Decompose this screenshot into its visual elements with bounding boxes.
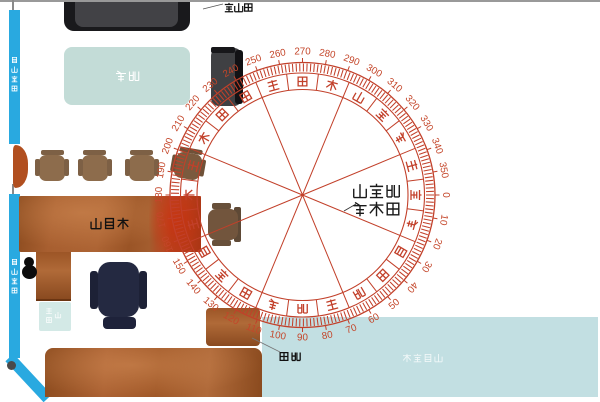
svg-text:30: 30 [419, 259, 434, 274]
svg-text:10: 10 [437, 213, 450, 226]
svg-text:320: 320 [403, 93, 422, 113]
svg-text:60: 60 [367, 311, 382, 326]
svg-text:130: 130 [201, 295, 221, 314]
svg-text:140: 140 [184, 277, 203, 297]
svg-text:180: 180 [154, 186, 165, 203]
svg-text:100: 100 [269, 329, 288, 343]
svg-text:90: 90 [297, 333, 308, 344]
svg-text:70: 70 [344, 322, 359, 336]
svg-text:220: 220 [184, 93, 203, 113]
svg-text:20: 20 [430, 237, 444, 252]
svg-text:200: 200 [160, 136, 176, 156]
svg-text:170: 170 [155, 210, 169, 229]
svg-text:350: 350 [436, 161, 450, 180]
svg-text:330: 330 [417, 114, 435, 134]
svg-text:0: 0 [440, 192, 451, 198]
svg-text:230: 230 [201, 76, 221, 95]
svg-text:250: 250 [244, 52, 264, 68]
svg-text:300: 300 [364, 62, 384, 80]
svg-text:120: 120 [221, 310, 241, 328]
svg-text:160: 160 [160, 234, 176, 254]
svg-text:310: 310 [385, 76, 405, 95]
svg-text:80: 80 [321, 329, 334, 342]
svg-text:110: 110 [244, 322, 263, 338]
svg-text:270: 270 [294, 47, 311, 58]
svg-text:210: 210 [170, 113, 188, 133]
svg-text:280: 280 [318, 47, 337, 61]
svg-text:260: 260 [269, 47, 288, 61]
svg-text:240: 240 [221, 62, 241, 80]
svg-text:150: 150 [170, 257, 188, 277]
svg-text:190: 190 [155, 161, 169, 180]
svg-text:340: 340 [429, 137, 445, 157]
svg-text:290: 290 [342, 53, 362, 69]
